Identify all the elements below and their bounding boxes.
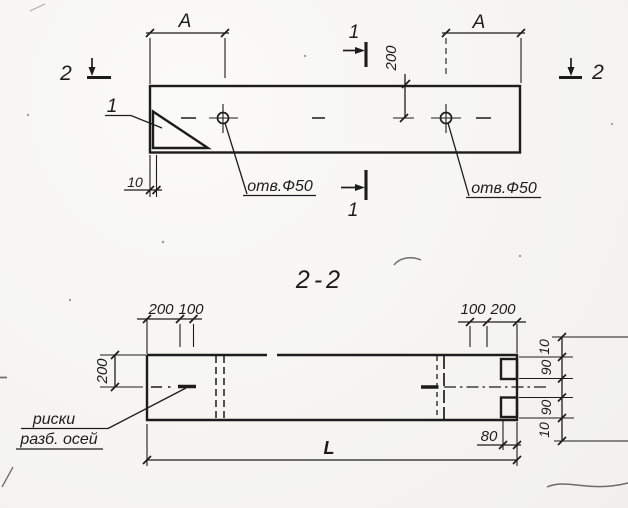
section-2-left-label: 2 — [59, 62, 72, 85]
section-1-bottom-arrowhead — [355, 184, 365, 191]
dim-a-right-label: A — [472, 12, 486, 33]
artifact-speck — [611, 123, 613, 125]
section-marker-1-bottom: 1 — [341, 170, 366, 221]
dim-right-10-bottom-label: 10 — [536, 422, 552, 438]
drawing-sheet: 1 отв.Ф50 отв.Ф50 — [0, 0, 628, 508]
dim-10-label: 10 — [127, 174, 143, 190]
section-1-top-arrowhead — [355, 47, 365, 54]
section-marker-2-left: 2 — [59, 58, 111, 85]
beam-outline-plan — [150, 86, 520, 153]
dim-right-10-top-label: 10 — [536, 339, 552, 355]
dim-80-label: 80 — [481, 428, 498, 445]
dims-top-right: 100 200 — [458, 301, 526, 353]
detail-ref-label: 1 — [107, 96, 118, 117]
dim-length: L — [143, 424, 521, 466]
axis-marks-note: риски разб. осей — [16, 388, 186, 449]
artifact-speck — [69, 299, 71, 301]
dim-a-left: A — [146, 11, 229, 84]
section-title: 2-2 — [295, 266, 344, 294]
dims-top-left: 200 100 — [137, 301, 204, 354]
hole-left — [181, 104, 325, 133]
artifact-speck — [162, 241, 165, 244]
section-2-right-arrowhead — [568, 67, 575, 76]
note-line1: риски — [32, 411, 75, 428]
section-view: 2-2 200 — [16, 266, 628, 466]
dim-80: 80 — [477, 420, 521, 466]
dim-left-200-label: 200 — [94, 358, 111, 385]
dim-top-right-100-label: 100 — [460, 301, 486, 318]
dim-200-plan: 200 — [383, 45, 410, 122]
hole-label-left-leader — [225, 123, 247, 194]
section-2-left-arrowhead — [89, 67, 96, 76]
hole-label-left-text: отв.Ф50 — [247, 178, 313, 195]
drawing-canvas: 1 отв.Ф50 отв.Ф50 — [0, 0, 628, 508]
artifact-stroke — [394, 258, 421, 265]
hole-label-right-leader — [448, 123, 469, 196]
dim-left-200: 200 — [94, 351, 146, 391]
axis-line — [100, 387, 546, 388]
hole-label-left: отв.Ф50 — [225, 123, 316, 196]
artifact-speck — [304, 55, 306, 57]
dim-200-label: 200 — [383, 45, 400, 72]
joint-lines — [216, 356, 444, 419]
dim-length-label: L — [324, 438, 335, 458]
section-1-top-label: 1 — [349, 22, 360, 43]
artifact-stroke — [2, 467, 13, 487]
artifact-speck — [27, 114, 29, 116]
dim-right-90-bottom-label: 90 — [538, 400, 554, 416]
corner-triangle — [153, 112, 208, 149]
hole-right — [393, 104, 491, 133]
dims-right-column: 10 90 90 10 — [519, 333, 628, 445]
plan-view: 1 отв.Ф50 отв.Ф50 — [59, 11, 604, 221]
hole-label-right: отв.Ф50 — [448, 123, 541, 198]
dims-top-right-extensions — [470, 324, 517, 353]
section-marker-1-top: 1 — [343, 22, 366, 67]
notch-upper — [501, 359, 517, 379]
hole-right-crosshair — [431, 104, 461, 133]
dim-right-90-top-label: 90 — [538, 360, 554, 376]
section-1-bottom-label: 1 — [348, 200, 359, 221]
section-marker-2-right: 2 — [559, 58, 604, 84]
artifact-speck — [519, 255, 521, 257]
dim-a-right: A — [442, 12, 525, 83]
artifact-stroke — [547, 483, 628, 487]
dim-top-left-100-label: 100 — [178, 301, 204, 318]
dim-top-right-200-label: 200 — [489, 301, 516, 318]
dim-10: 10 — [124, 155, 162, 197]
artifact-stroke — [30, 4, 45, 11]
section-2-right-label: 2 — [591, 61, 604, 84]
notch-lower — [501, 398, 517, 418]
hole-label-right-text: отв.Ф50 — [471, 180, 537, 197]
dim-a-left-extensions — [150, 38, 225, 84]
dims-top-left-extensions — [147, 319, 194, 354]
dim-top-left-200-label: 200 — [147, 301, 174, 318]
note-line2: разб. осей — [19, 431, 97, 448]
hole-left-crosshair — [209, 104, 238, 133]
dim-a-left-label: A — [178, 11, 192, 32]
